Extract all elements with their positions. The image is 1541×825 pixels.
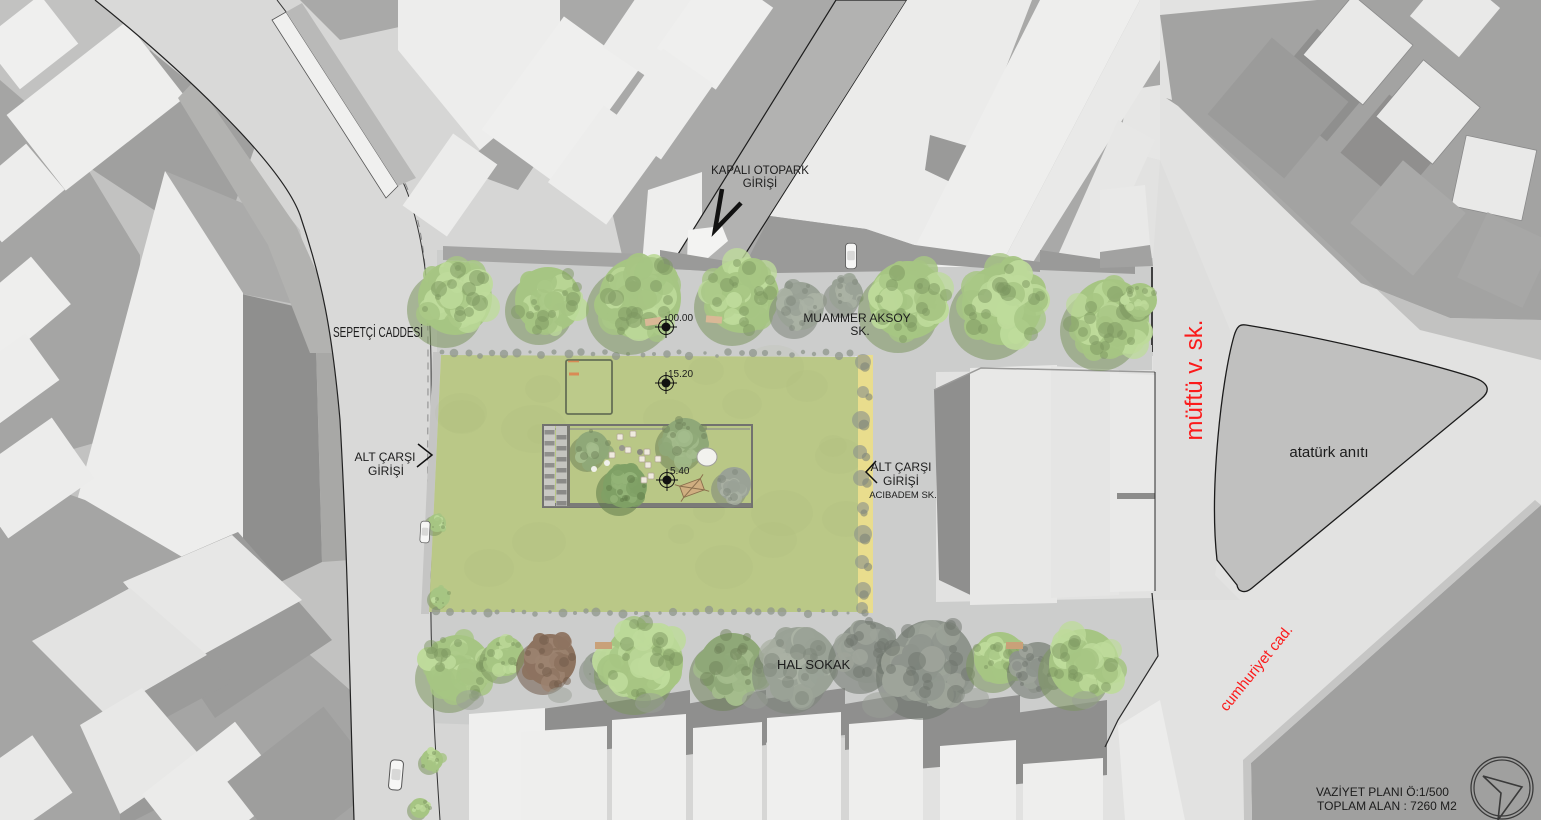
svg-text:ACIBADEM SK.: ACIBADEM SK.: [869, 490, 937, 501]
svg-text:KAPALI OTOPARK: KAPALI OTOPARK: [711, 165, 809, 177]
svg-text:VAZİYET PLANI Ö:1/500: VAZİYET PLANI Ö:1/500: [1316, 785, 1449, 799]
svg-text:GİRİŞİ: GİRİŞİ: [743, 177, 778, 190]
svg-text:SK.: SK.: [850, 324, 869, 338]
svg-text:müftü v. sk.: müftü v. sk.: [1181, 320, 1208, 441]
svg-text:HAL SOKAK: HAL SOKAK: [777, 657, 851, 672]
svg-text:SEPETÇİ CADDESİ: SEPETÇİ CADDESİ: [333, 323, 423, 341]
svg-text:GİRİŞİ: GİRİŞİ: [883, 474, 919, 488]
svg-text:MUAMMER AKSOY: MUAMMER AKSOY: [803, 311, 910, 325]
svg-text:TOPLAM ALAN : 7260 M2: TOPLAM ALAN : 7260 M2: [1317, 799, 1457, 813]
svg-text:15.20: 15.20: [668, 369, 693, 380]
svg-text:5.40: 5.40: [670, 466, 690, 477]
svg-text:00.00: 00.00: [668, 313, 693, 324]
svg-text:ALT ÇARŞI: ALT ÇARŞI: [355, 450, 416, 464]
svg-text:GİRİŞİ: GİRİŞİ: [368, 464, 404, 478]
svg-text:atatürk anıtı: atatürk anıtı: [1289, 444, 1368, 461]
svg-text:ALT ÇARŞI: ALT ÇARŞI: [871, 460, 932, 474]
